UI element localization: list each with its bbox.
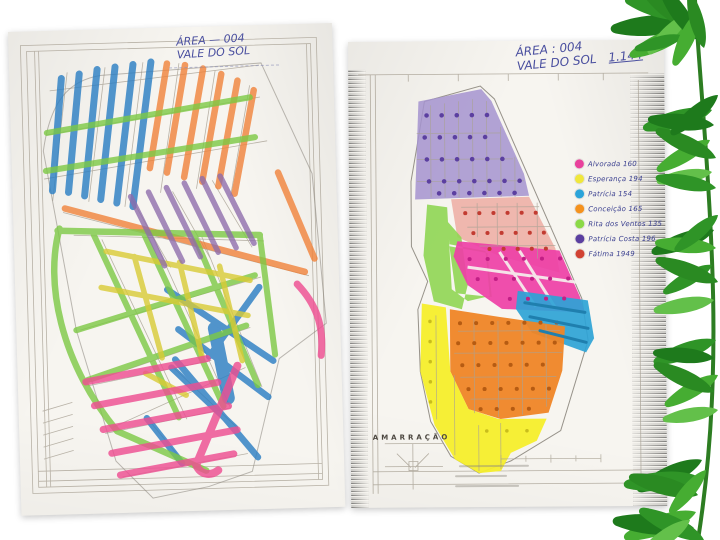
legend-color-dot: [575, 249, 584, 258]
legend-color-dot: [575, 159, 584, 168]
fine-print-line: [455, 475, 507, 477]
amarracao-label: AMARRAÇÃO: [373, 433, 451, 442]
plant-foliage: [600, 0, 720, 540]
legend-color-dot: [575, 219, 584, 228]
legend-color-dot: [575, 189, 584, 198]
zone-purple: [414, 89, 529, 200]
left-map-title: ÁREA — 004 VALE DO SOL: [176, 32, 251, 62]
legend-color-dot: [575, 204, 584, 213]
legend-color-dot: [575, 234, 584, 243]
left-map-drawing: [8, 23, 345, 516]
left-map-paper: ÁREA — 004 VALE DO SOL: [8, 23, 345, 516]
zone-orange: [450, 308, 566, 419]
slide-canvas: ÁREA — 004 VALE DO SOL: [0, 0, 720, 540]
legend-color-dot: [575, 174, 584, 183]
